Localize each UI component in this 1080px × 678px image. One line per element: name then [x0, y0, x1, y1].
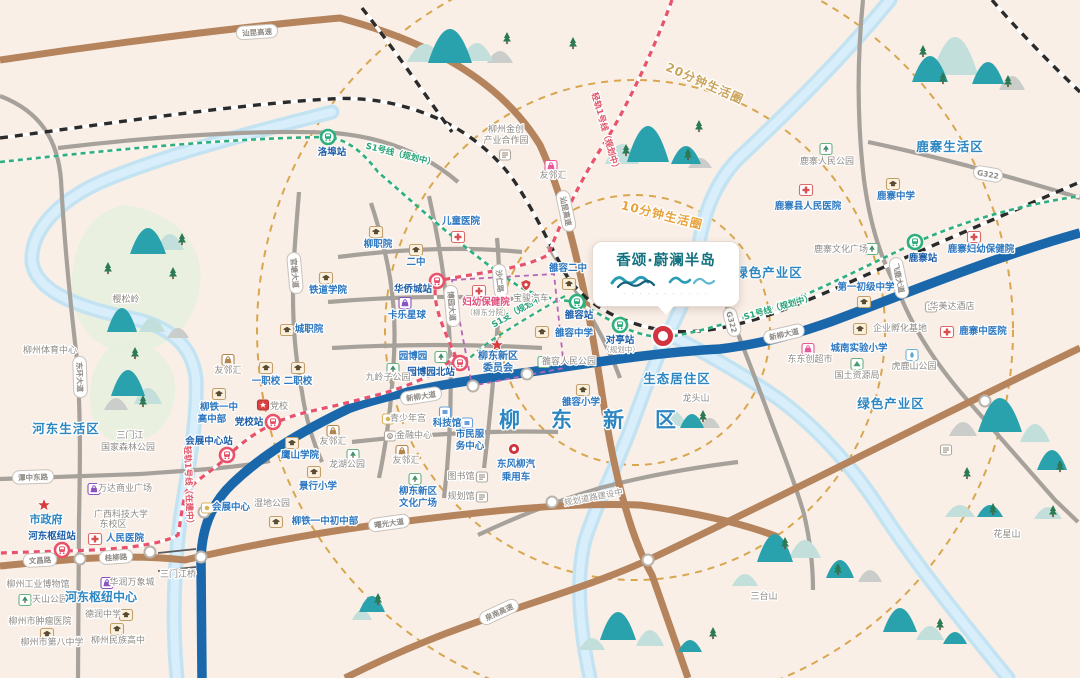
building-icon [477, 492, 488, 502]
school-icon [858, 297, 871, 308]
poi-label: 卡乐星球 [388, 309, 427, 321]
poi-label: 城职院 [295, 323, 324, 335]
property-tagline: · · · · · · · · · · · [593, 291, 739, 297]
mount-green-icon [851, 359, 863, 370]
poi-label: 生态居住区 [643, 371, 711, 386]
poi-label: 东东创超市 [787, 353, 832, 365]
metro-station-icon [908, 235, 922, 249]
poi-label: 鹿寨人民公园 [800, 155, 854, 167]
school-icon [281, 325, 294, 336]
park-icon [19, 595, 31, 606]
road-name-pill: 文昌路 [23, 552, 57, 567]
park-icon [409, 474, 421, 485]
poi-label: 友邻汇 [392, 454, 419, 466]
road-name-pill: 东环大道 [73, 356, 88, 398]
poi-label: 会展中心站 [185, 435, 233, 447]
school-icon [854, 324, 867, 335]
poi-label: 柳东新区 [399, 485, 438, 497]
poi-label: 规划馆 [447, 490, 474, 502]
school-icon [120, 610, 133, 621]
poi-label: 柳州市第八中学 [20, 636, 83, 648]
poi-label: 柳职院 [364, 238, 393, 250]
poi-label: 友邻汇 [214, 364, 241, 376]
poi-label: 景行小学 [298, 480, 338, 492]
civic-blue-icon [440, 407, 451, 417]
metro-station-icon [613, 318, 627, 332]
poi-label: 三台山 [750, 590, 777, 602]
road-junction [547, 497, 558, 508]
poi-label: 洛埠站 [318, 146, 347, 158]
poi-label: 河东枢纽中心 [64, 589, 137, 604]
poi-label: 城南实验小学 [830, 342, 888, 354]
poi-label: 柳州民族高中 [91, 634, 145, 646]
road-junction [643, 555, 654, 566]
poi-label: 儿童医院 [441, 215, 481, 227]
lightrail-station-icon [453, 356, 467, 370]
park-icon [347, 450, 359, 461]
map-container: 汕昆高速汕昆高速泉南高速曙光大道新柳大道新柳大道文昌路桂柳路东环大道官塘大道博园… [0, 0, 1080, 678]
poi-label: 德润中学 [85, 608, 121, 620]
road-name-pill: 潭中东路 [12, 469, 54, 484]
poi-label: 柳州体育中心 [23, 344, 77, 356]
poi-label: 雒容人民公园 [542, 355, 596, 367]
road-name-pill: 博园大道 [444, 285, 461, 327]
lightrail-station-icon [55, 543, 69, 557]
poi-label: 市民服 [456, 428, 485, 440]
school-icon [887, 179, 900, 190]
hospital-icon [800, 185, 813, 196]
poi-label: 雒容小学 [562, 396, 601, 408]
poi-label: 文化广场 [398, 497, 438, 509]
svg-text:沙仁路: 沙仁路 [494, 269, 506, 293]
poi-label: 万达商业广场 [98, 482, 152, 494]
district-title: 柳东新区 [499, 408, 707, 432]
poi-label: 龙湖公园 [329, 458, 365, 470]
poi-label: 绿色产业区 [735, 265, 803, 280]
mall-tan-icon [222, 355, 234, 366]
school-icon [286, 438, 299, 449]
road-name-pill: 官塘大道 [287, 252, 304, 294]
road-junction [468, 381, 479, 392]
car-red-icon [508, 443, 519, 454]
mall-purple-icon [399, 298, 411, 309]
finance-icon [385, 431, 396, 441]
road-name-pill: 汕昆高速 [236, 24, 278, 40]
poi-label: 青少年宫 [390, 412, 426, 424]
school-icon [577, 385, 590, 396]
poi-label: 华美达酒店 [929, 300, 974, 312]
poi-label: 虎鹿山公园 [891, 360, 936, 372]
poi-label: 花星山 [993, 528, 1020, 540]
gov-red-icon [258, 400, 269, 410]
poi-label: 柳东新区 [478, 349, 518, 362]
poi-label: 园博园 [399, 350, 428, 362]
poi-label: 金融中心 [396, 429, 432, 441]
poi-label: 妇幼保健院 [461, 296, 510, 308]
mall-pink-icon [545, 161, 557, 172]
svg-text:文昌路: 文昌路 [29, 554, 52, 565]
poi-label: 绿色产业区 [857, 396, 925, 411]
svg-text:桂柳路: 桂柳路 [103, 551, 128, 563]
hospital-icon [968, 232, 981, 243]
poi-label: 河东枢纽站 [28, 530, 76, 542]
svg-text:潭中东路: 潭中东路 [18, 471, 49, 482]
lightrail-station-icon [266, 415, 280, 429]
building-icon [941, 445, 952, 455]
poi-label: 鹿寨中医院 [958, 325, 1007, 337]
poi-label: 柳铁一中初中部 [292, 515, 359, 527]
poi-label: 天山公园 [32, 594, 68, 605]
poi-label: （柳东分院） [466, 307, 511, 317]
poi-label: 鹿寨站 [908, 252, 938, 264]
poi-label: 雒容站 [565, 309, 594, 321]
poi-label: 东校区 [99, 518, 126, 530]
poi-label: 铁道学院 [309, 284, 348, 296]
property-callout[interactable]: 香颂·蔚澜半岛 · · · · · · · · · · · [592, 241, 740, 307]
school-icon [260, 363, 273, 374]
drop-blue-icon [906, 350, 918, 361]
poi-label: 湿地公园 [254, 497, 290, 509]
poi-label: 华润万象城 [109, 576, 154, 588]
poi-label: 雒容中学 [555, 327, 594, 339]
poi-label: （规划中） [602, 344, 640, 354]
school-icon [292, 363, 305, 374]
bag-yellow-icon [202, 503, 213, 513]
poi-label: 华侨城站 [394, 283, 433, 295]
metro-station-icon [321, 130, 335, 144]
building-icon [500, 150, 511, 160]
property-pin[interactable] [651, 324, 675, 348]
poi-label: 广西科技大学 [94, 508, 148, 520]
poi-label: 乘用车 [501, 471, 531, 483]
school-icon [111, 624, 124, 635]
lightrail-station-icon [220, 448, 234, 462]
road-junction [75, 554, 86, 565]
poi-label: 一职校 [252, 375, 281, 387]
road-junction [522, 369, 533, 380]
poi-label: 三门江 [116, 429, 143, 441]
road-junction [145, 547, 156, 558]
poi-label: 鹿寨中学 [876, 190, 916, 202]
park-icon [820, 144, 832, 155]
poi-label: 党校 [270, 400, 288, 412]
road-name-pill: 沙仁路 [492, 264, 508, 298]
poi-label: 三门江桥 [160, 568, 196, 580]
mall-tan-icon [327, 426, 339, 437]
poi-label: 园博园北站 [407, 366, 455, 378]
poi-label: 会展中心 [212, 501, 251, 513]
road-junction [196, 552, 207, 563]
poi-label: 鹿寨县人民医院 [774, 200, 842, 212]
poi-label: 东风柳汽 [497, 458, 536, 470]
hospital-icon [941, 327, 954, 338]
poi-label: 九岭子公园 [365, 371, 410, 383]
park-icon [435, 352, 447, 363]
hospital-icon [452, 232, 465, 243]
poi-label: 鹿寨生活区 [916, 139, 984, 154]
road-name-pill: 桂柳路 [99, 549, 133, 565]
lightrail-station-icon [430, 274, 444, 288]
poi-label: 鹿寨文化广场 [814, 243, 868, 255]
poi-label: 柳州金创 [488, 123, 524, 135]
metro-station-icon [570, 295, 584, 309]
school-icon [370, 227, 383, 238]
poi-label: 务中心 [456, 440, 485, 452]
school-icon [213, 389, 226, 400]
poi-label: 友邻汇 [539, 169, 566, 181]
poi-label: 国土资源局 [834, 369, 879, 381]
poi-label: 雒容二中 [549, 262, 587, 274]
hospital-icon [89, 534, 102, 545]
brand-waves-icon [608, 271, 724, 291]
poi-label: 樱松岭 [112, 293, 139, 305]
poi-label: 党校站 [235, 416, 264, 428]
school-icon [270, 517, 283, 528]
poi-label: 二职校 [284, 375, 313, 387]
poi-label: 友邻汇 [319, 435, 346, 447]
mall-tan-icon [396, 446, 408, 457]
poi-label: 柳州工业博物馆 [6, 578, 69, 590]
map-canvas: 汕昆高速汕昆高速泉南高速曙光大道新柳大道新柳大道文昌路桂柳路东环大道官塘大道博园… [0, 0, 1080, 678]
poi-label: 产业合作园 [483, 134, 528, 146]
poi-label: 科技馆 [433, 417, 462, 429]
poi-label: 龙头山 [682, 392, 709, 404]
poi-label: 河东生活区 [32, 421, 100, 436]
svg-text:东环大道: 东环大道 [74, 362, 85, 393]
road-junction [980, 396, 991, 407]
poi-label: 人民医院 [106, 532, 145, 544]
civic-blue-icon [462, 418, 473, 428]
building-icon [477, 472, 488, 482]
poi-label: 委员会 [482, 361, 513, 374]
poi-label: 高中部 [198, 413, 227, 425]
poi-label: 宝骏汽车 [513, 292, 549, 304]
poi-label: 鹿寨妇幼保健院 [947, 243, 1015, 255]
poi-label: 柳州市肿瘤医院 [8, 615, 71, 627]
poi-label: 第一初级中学 [837, 281, 895, 293]
hospital-icon [473, 286, 486, 297]
school-icon [563, 279, 576, 290]
poi-label: 鹰山学院 [281, 449, 320, 461]
school-icon [536, 327, 549, 338]
poi-label: 图书馆 [447, 470, 474, 482]
poi-label: 柳铁一中 [200, 401, 238, 413]
school-icon [308, 467, 321, 478]
poi-label: 国家森林公园 [101, 441, 155, 453]
school-icon [320, 273, 333, 284]
poi-label: 二中 [406, 256, 425, 268]
poi-label: 企业孵化基地 [873, 322, 927, 334]
property-name: 香颂·蔚澜半岛 [593, 249, 739, 270]
mall-pink-icon [802, 344, 814, 355]
poi-label: 市政府 [30, 512, 63, 526]
school-icon [410, 245, 423, 256]
